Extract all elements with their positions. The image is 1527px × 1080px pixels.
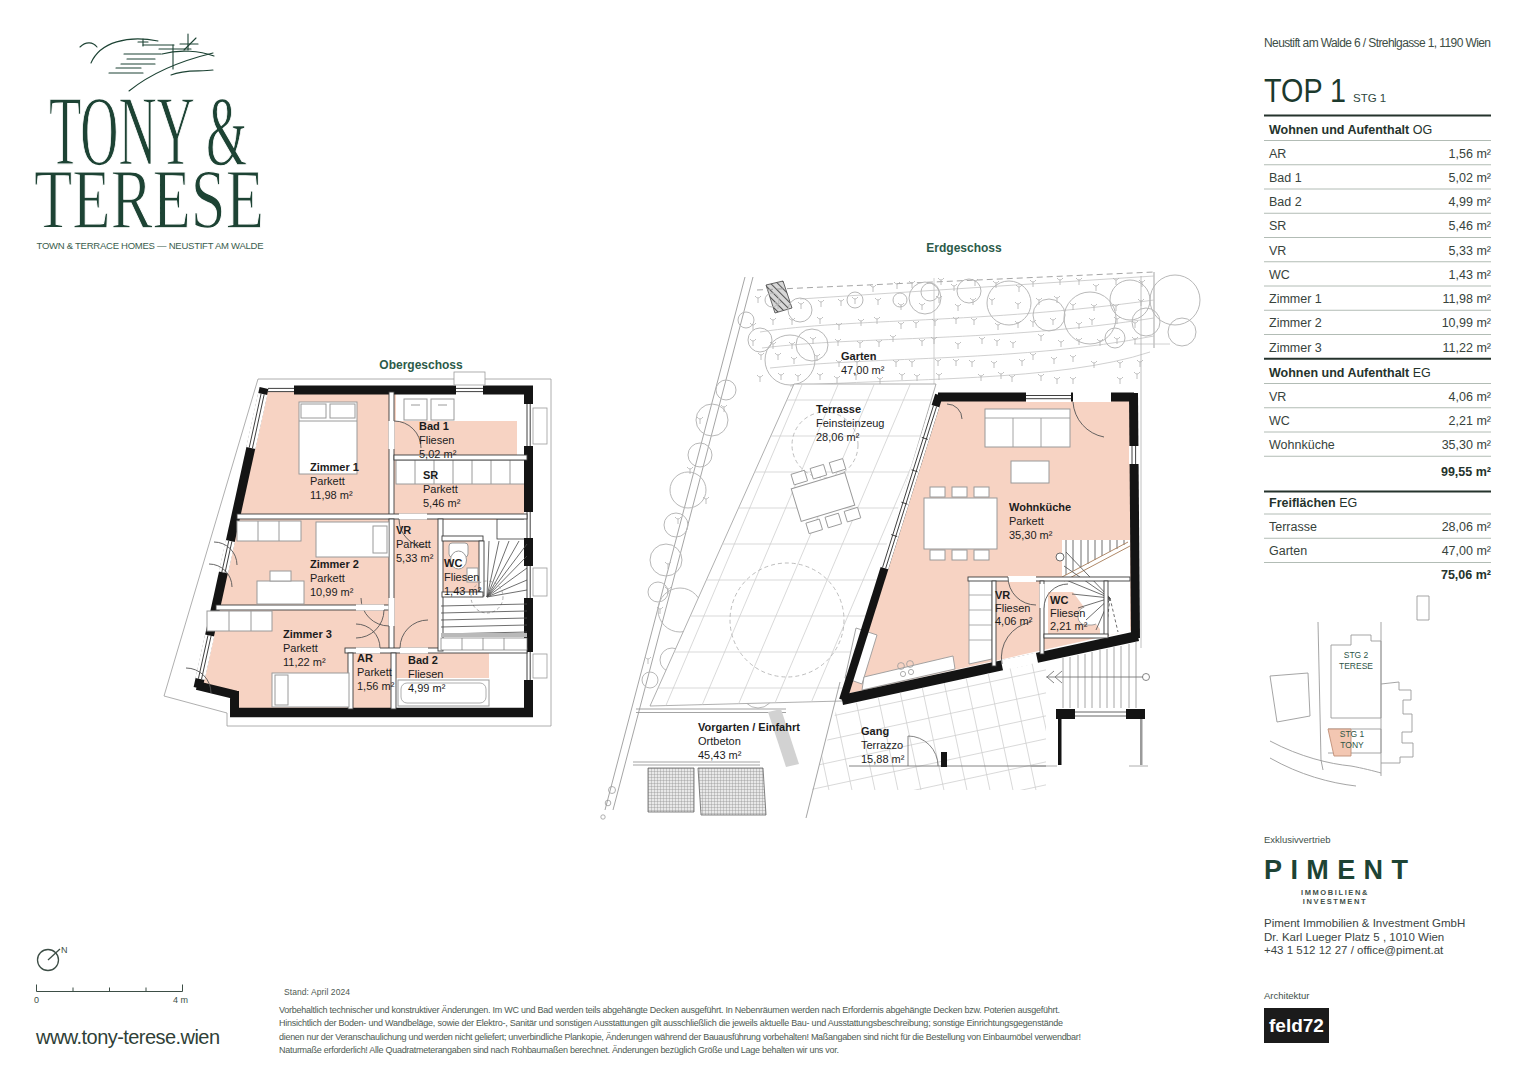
svg-text:Zimmer 3: Zimmer 3 — [1269, 341, 1322, 355]
svg-text:Fliesen: Fliesen — [408, 668, 443, 680]
svg-text:Wohnküche: Wohnküche — [1009, 501, 1071, 513]
svg-text:35,30 m²: 35,30 m² — [1442, 438, 1491, 452]
svg-text:Vorgarten / Einfahrt: Vorgarten / Einfahrt — [698, 721, 800, 733]
svg-text:45,43 m²: 45,43 m² — [698, 749, 742, 761]
svg-text:1,43 m²: 1,43 m² — [1449, 268, 1491, 282]
svg-text:SR: SR — [1269, 219, 1286, 233]
svg-text:Vorbehaltlich technischer und: Vorbehaltlich technischer und konstrukti… — [279, 1005, 1060, 1015]
svg-text:SR: SR — [423, 469, 438, 481]
svg-text:11,98 m²: 11,98 m² — [310, 489, 353, 501]
svg-text:28,06 m²: 28,06 m² — [1442, 520, 1491, 534]
svg-text:1,56 m²: 1,56 m² — [1449, 147, 1491, 161]
svg-text:WC: WC — [1050, 594, 1068, 606]
svg-text:Piment Immobilien & Investment: Piment Immobilien & Investment GmbH — [1264, 917, 1465, 929]
svg-text:INVESTMENT: INVESTMENT — [1303, 897, 1367, 906]
svg-text:WC: WC — [444, 557, 462, 569]
svg-text:4 m: 4 m — [173, 995, 188, 1005]
svg-text:5,02 m²: 5,02 m² — [419, 448, 457, 460]
svg-text:Zimmer 3: Zimmer 3 — [283, 628, 332, 640]
svg-text:WC: WC — [1269, 268, 1290, 282]
svg-text:11,98 m²: 11,98 m² — [1443, 292, 1491, 306]
svg-text:Parkett: Parkett — [423, 483, 458, 495]
svg-text:Obergeschoss: Obergeschoss — [379, 358, 463, 372]
svg-text:1,56 m²: 1,56 m² — [357, 680, 395, 692]
svg-text:Wohnen und Aufenthalt EG: Wohnen und Aufenthalt EG — [1269, 366, 1431, 380]
svg-text:Parkett: Parkett — [310, 572, 345, 584]
svg-text:Hinsichtlich der Boden- und Wa: Hinsichtlich der Boden- und Wandbeläge, … — [279, 1018, 1063, 1028]
svg-text:35,30 m²: 35,30 m² — [1009, 529, 1053, 541]
svg-text:Fliesen: Fliesen — [1050, 607, 1085, 619]
svg-text:TOWN & TERRACE HOMES — NEUSTIF: TOWN & TERRACE HOMES — NEUSTIFT AM WALDE — [37, 240, 264, 251]
svg-text:Zimmer 2: Zimmer 2 — [310, 558, 359, 570]
svg-text:1,43 m²: 1,43 m² — [444, 585, 482, 597]
svg-text:Exklusivvertrieb: Exklusivvertrieb — [1264, 834, 1331, 845]
svg-text:5,33 m²: 5,33 m² — [1449, 244, 1491, 258]
svg-text:IMMOBILIEN&: IMMOBILIEN& — [1301, 888, 1369, 897]
svg-text:VR: VR — [396, 524, 411, 536]
svg-text:WC: WC — [1269, 414, 1290, 428]
svg-text:Parkett: Parkett — [310, 475, 345, 487]
svg-text:10,99 m²: 10,99 m² — [1442, 316, 1491, 330]
svg-text:feld72: feld72 — [1269, 1015, 1324, 1036]
svg-text:Freiflächen EG: Freiflächen EG — [1269, 496, 1357, 510]
svg-text:Gang: Gang — [861, 725, 889, 737]
svg-text:Parkett: Parkett — [396, 538, 431, 550]
svg-text:TOP 1: TOP 1 — [1264, 72, 1346, 109]
svg-text:Parkett: Parkett — [357, 666, 392, 678]
svg-text:5,46 m²: 5,46 m² — [423, 497, 461, 509]
svg-text:Naturmaße erforderlich! Alle Q: Naturmaße erforderlich! Alle Quadratmete… — [279, 1045, 839, 1055]
svg-text:N: N — [61, 945, 68, 955]
svg-text:Feinsteinzeug: Feinsteinzeug — [816, 417, 885, 429]
svg-text:Bad 1: Bad 1 — [419, 420, 449, 432]
svg-text:dienen nur der Veranschaulichu: dienen nur der Veranschaulichung und wer… — [279, 1032, 1081, 1042]
svg-text:Fliesen: Fliesen — [419, 434, 454, 446]
svg-text:47,00 m²: 47,00 m² — [841, 364, 885, 376]
svg-text:Erdgeschoss: Erdgeschoss — [926, 241, 1002, 255]
svg-text:Terrasse: Terrasse — [816, 403, 861, 415]
svg-text:Bad 2: Bad 2 — [408, 654, 438, 666]
svg-text:Parkett: Parkett — [283, 642, 318, 654]
svg-text:Terrasse: Terrasse — [1269, 520, 1317, 534]
svg-text:Garten: Garten — [1269, 544, 1307, 558]
svg-text:Fliesen: Fliesen — [995, 602, 1030, 614]
svg-text:15,88 m²: 15,88 m² — [861, 753, 905, 765]
svg-text:5,46 m²: 5,46 m² — [1449, 219, 1491, 233]
svg-text:VR: VR — [995, 589, 1010, 601]
svg-text:Bad 1: Bad 1 — [1269, 171, 1302, 185]
svg-text:Ortbeton: Ortbeton — [698, 735, 741, 747]
svg-text:4,99 m²: 4,99 m² — [1449, 195, 1491, 209]
svg-text:Bad 2: Bad 2 — [1269, 195, 1302, 209]
svg-text:+43 1 512 12 27 / office@pimen: +43 1 512 12 27 / office@piment.at — [1264, 944, 1444, 956]
svg-text:Neustift am Walde 6 / Strehlga: Neustift am Walde 6 / Strehlgasse 1, 119… — [1264, 36, 1491, 50]
svg-text:AR: AR — [1269, 147, 1286, 161]
svg-text:11,22 m²: 11,22 m² — [283, 656, 326, 668]
svg-text:75,06 m²: 75,06 m² — [1441, 568, 1491, 582]
svg-text:Zimmer 1: Zimmer 1 — [310, 461, 359, 473]
svg-text:www.tony-terese.wien: www.tony-terese.wien — [35, 1026, 220, 1048]
svg-text:Zimmer 2: Zimmer 2 — [1269, 316, 1322, 330]
svg-text:PIMENT: PIMENT — [1264, 855, 1409, 885]
svg-text:AR: AR — [357, 652, 373, 664]
svg-text:Dr. Karl Lueger Platz 5 , 1010: Dr. Karl Lueger Platz 5 , 1010 Wien — [1264, 931, 1444, 943]
svg-text:VR: VR — [1269, 390, 1286, 404]
svg-text:4,99 m²: 4,99 m² — [408, 682, 446, 694]
svg-text:Terrazzo: Terrazzo — [861, 739, 903, 751]
svg-text:Parkett: Parkett — [1009, 515, 1044, 527]
svg-text:Garten: Garten — [841, 350, 877, 362]
svg-text:TONY: TONY — [1340, 740, 1364, 750]
svg-text:2,21 m²: 2,21 m² — [1050, 620, 1088, 632]
svg-text:Wohnküche: Wohnküche — [1269, 438, 1335, 452]
svg-text:47,00 m²: 47,00 m² — [1442, 544, 1491, 558]
svg-text:28,06 m²: 28,06 m² — [816, 431, 860, 443]
svg-text:Wohnen und Aufenthalt OG: Wohnen und Aufenthalt OG — [1269, 123, 1432, 137]
svg-text:4,06 m²: 4,06 m² — [995, 615, 1033, 627]
svg-text:5,02 m²: 5,02 m² — [1449, 171, 1491, 185]
svg-text:Stand: April 2024: Stand: April 2024 — [284, 987, 350, 997]
svg-text:Fliesen: Fliesen — [444, 571, 479, 583]
svg-text:0: 0 — [34, 995, 39, 1005]
svg-text:TERESE: TERESE — [34, 152, 264, 246]
svg-text:5,33 m²: 5,33 m² — [396, 552, 434, 564]
svg-text:Zimmer 1: Zimmer 1 — [1269, 292, 1322, 306]
svg-text:11,22 m²: 11,22 m² — [1443, 341, 1491, 355]
svg-text:VR: VR — [1269, 244, 1286, 258]
svg-text:2,21 m²: 2,21 m² — [1449, 414, 1491, 428]
svg-text:STG 1: STG 1 — [1340, 729, 1365, 739]
svg-text:STG 1: STG 1 — [1353, 92, 1386, 104]
svg-text:STG 2: STG 2 — [1344, 650, 1369, 660]
svg-text:99,55 m²: 99,55 m² — [1441, 465, 1491, 479]
svg-text:4,06 m²: 4,06 m² — [1449, 390, 1491, 404]
svg-text:Architektur: Architektur — [1264, 990, 1309, 1001]
svg-text:10,99 m²: 10,99 m² — [310, 586, 354, 598]
svg-text:TERESE: TERESE — [1339, 661, 1373, 671]
